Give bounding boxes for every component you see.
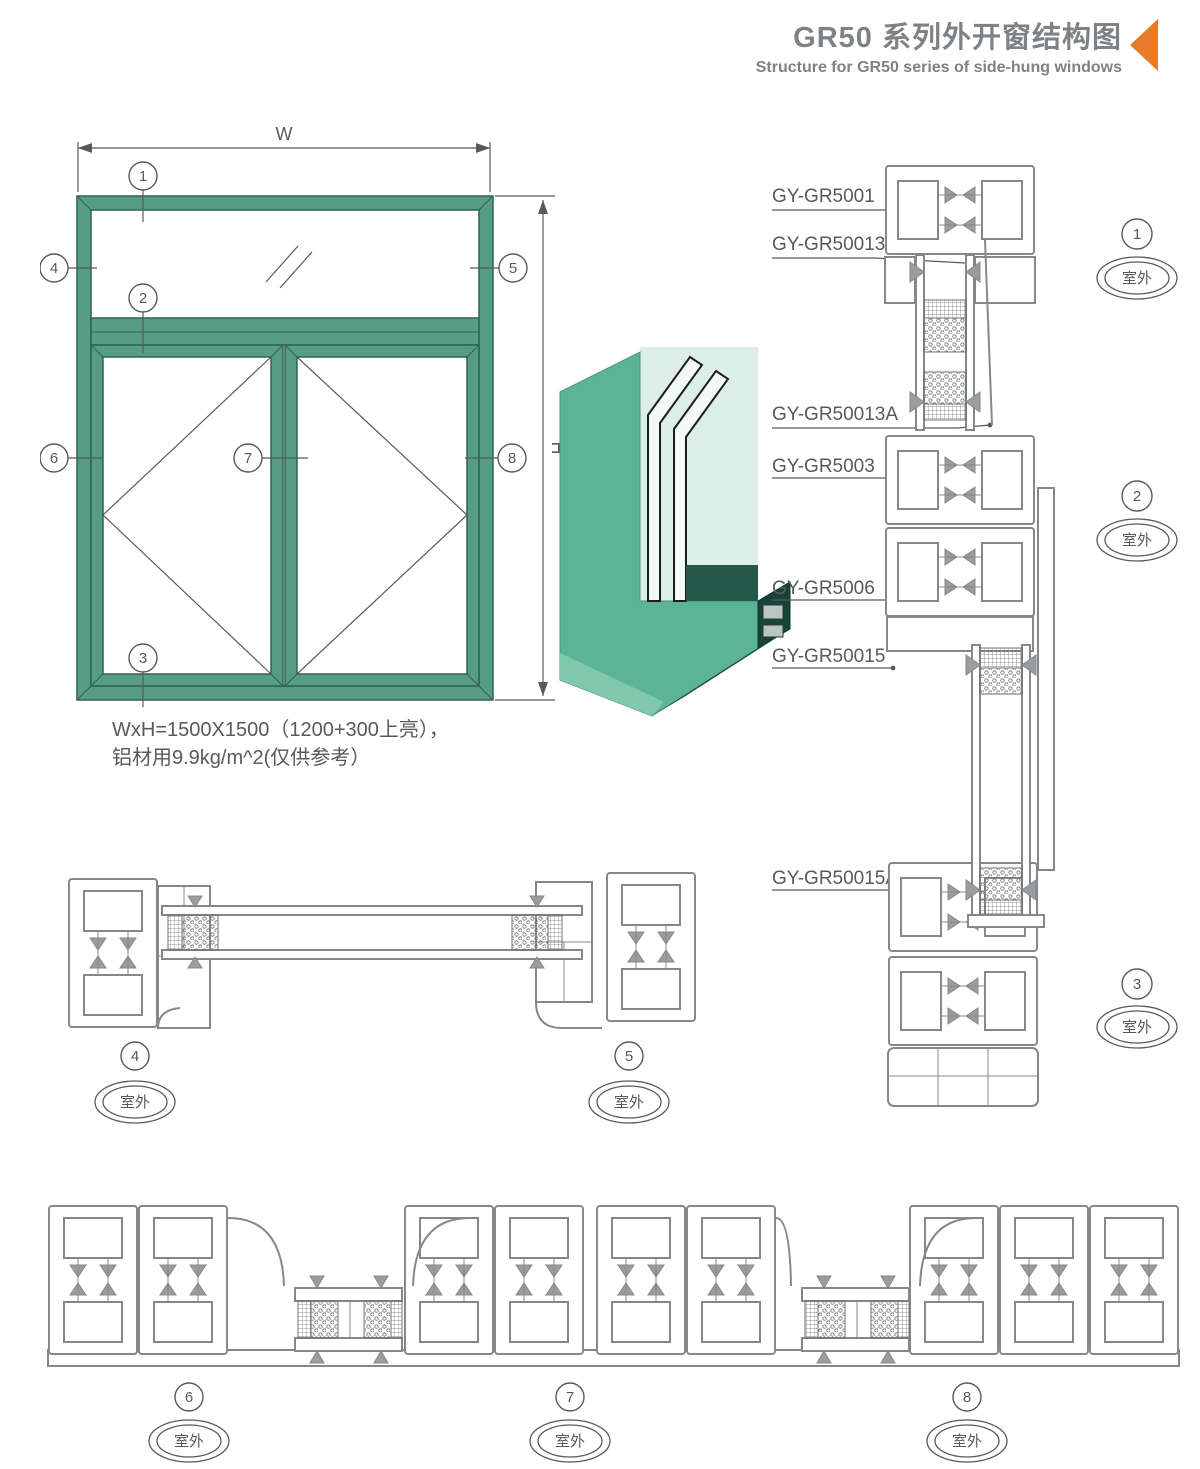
glass-unit-horizontal	[162, 896, 582, 968]
section-callout-2: 2	[1133, 488, 1141, 505]
accent-triangle-icon	[1130, 19, 1158, 71]
left-sash-opening-symbol	[103, 357, 271, 674]
callout-2: 2	[139, 290, 147, 307]
profile-label-gy-gr50013: GY-GR50013	[772, 234, 885, 255]
glass-junction-2	[802, 1276, 909, 1363]
left-sash	[91, 345, 283, 686]
right-sash	[285, 345, 479, 686]
bottom-horizontal-section-drawing: 6 室外 7 室外 8 室外	[30, 1180, 1200, 1469]
profile-label-gy-gr5006: GY-GR5006	[772, 578, 875, 599]
callout-8: 8	[508, 450, 516, 467]
vertical-section-callouts: 1 室外 2 室外 3 室外	[1097, 219, 1177, 1048]
page-header: GR50 系列外开窗结构图 Structure for GR50 series …	[756, 14, 1122, 77]
outdoor-label-2: 室外	[1122, 532, 1152, 549]
profile-label-gy-gr50015: GY-GR50015	[772, 646, 885, 667]
dim-w-label: W	[276, 124, 293, 144]
glass-junction-1	[295, 1276, 402, 1363]
section-callout-4: 4	[131, 1048, 139, 1065]
callout-3: 3	[139, 650, 147, 667]
bottom-section-callouts: 6 室外 7 室外 8 室外	[149, 1383, 1007, 1462]
window-elevation-drawing: W H 1 2	[40, 120, 560, 780]
page-title: GR50 系列外开窗结构图	[756, 14, 1122, 56]
outdoor-label-4: 室外	[120, 1094, 150, 1111]
page: GR50 系列外开窗结构图 Structure for GR50 series …	[0, 0, 1200, 1469]
callout-5: 5	[509, 260, 517, 277]
callout-7: 7	[244, 450, 252, 467]
callout-4: 4	[50, 260, 58, 277]
vertical-section-drawing: GY-GR5001 GY-GR50013 GY-GR50013A GY-GR50…	[760, 150, 1200, 1150]
outdoor-label-7: 室外	[555, 1433, 585, 1450]
spec-line-1: WxH=1500X1500（1200+300上亮），	[112, 716, 449, 744]
section-callout-3: 3	[1133, 976, 1141, 993]
outdoor-label-6: 室外	[174, 1433, 204, 1450]
spec-line-2: 铝材用9.9kg/m^2(仅供参考）	[112, 744, 449, 772]
profile-label-gy-gr50013a: GY-GR50013A	[772, 404, 898, 425]
section-callout-6: 6	[185, 1389, 193, 1406]
callout-6: 6	[50, 450, 58, 467]
right-sash-opening-symbol	[297, 357, 467, 674]
horizontal-section-drawing: 4 室外 5 室外	[50, 860, 710, 1150]
profile-label-gy-gr5001: GY-GR5001	[772, 186, 875, 207]
page-subtitle: Structure for GR50 series of side-hung w…	[756, 59, 1122, 77]
section-callout-5: 5	[625, 1048, 633, 1065]
profile-label-gy-gr5003: GY-GR5003	[772, 456, 875, 477]
outdoor-label-3: 室外	[1122, 1019, 1152, 1036]
outdoor-label-8: 室外	[952, 1433, 982, 1450]
section-callout-1: 1	[1133, 226, 1141, 243]
outdoor-label-5: 室外	[614, 1094, 644, 1111]
callout-1: 1	[139, 168, 147, 185]
outdoor-label-1: 室外	[1122, 270, 1152, 287]
glass-mark	[266, 246, 312, 288]
section-callout-8: 8	[963, 1389, 971, 1406]
glass-unit-upper	[910, 255, 980, 430]
horizontal-section-callouts: 4 室外 5 室外	[95, 1042, 669, 1123]
profile-label-gy-gr50015a: GY-GR50015A	[772, 868, 898, 889]
section-callout-7: 7	[566, 1389, 574, 1406]
profile-3d-render	[552, 335, 792, 725]
spec-text: WxH=1500X1500（1200+300上亮）， 铝材用9.9kg/m^2(…	[112, 716, 449, 772]
bottom-section-profiles	[49, 1206, 1178, 1354]
glass-unit-lower	[966, 645, 1044, 927]
